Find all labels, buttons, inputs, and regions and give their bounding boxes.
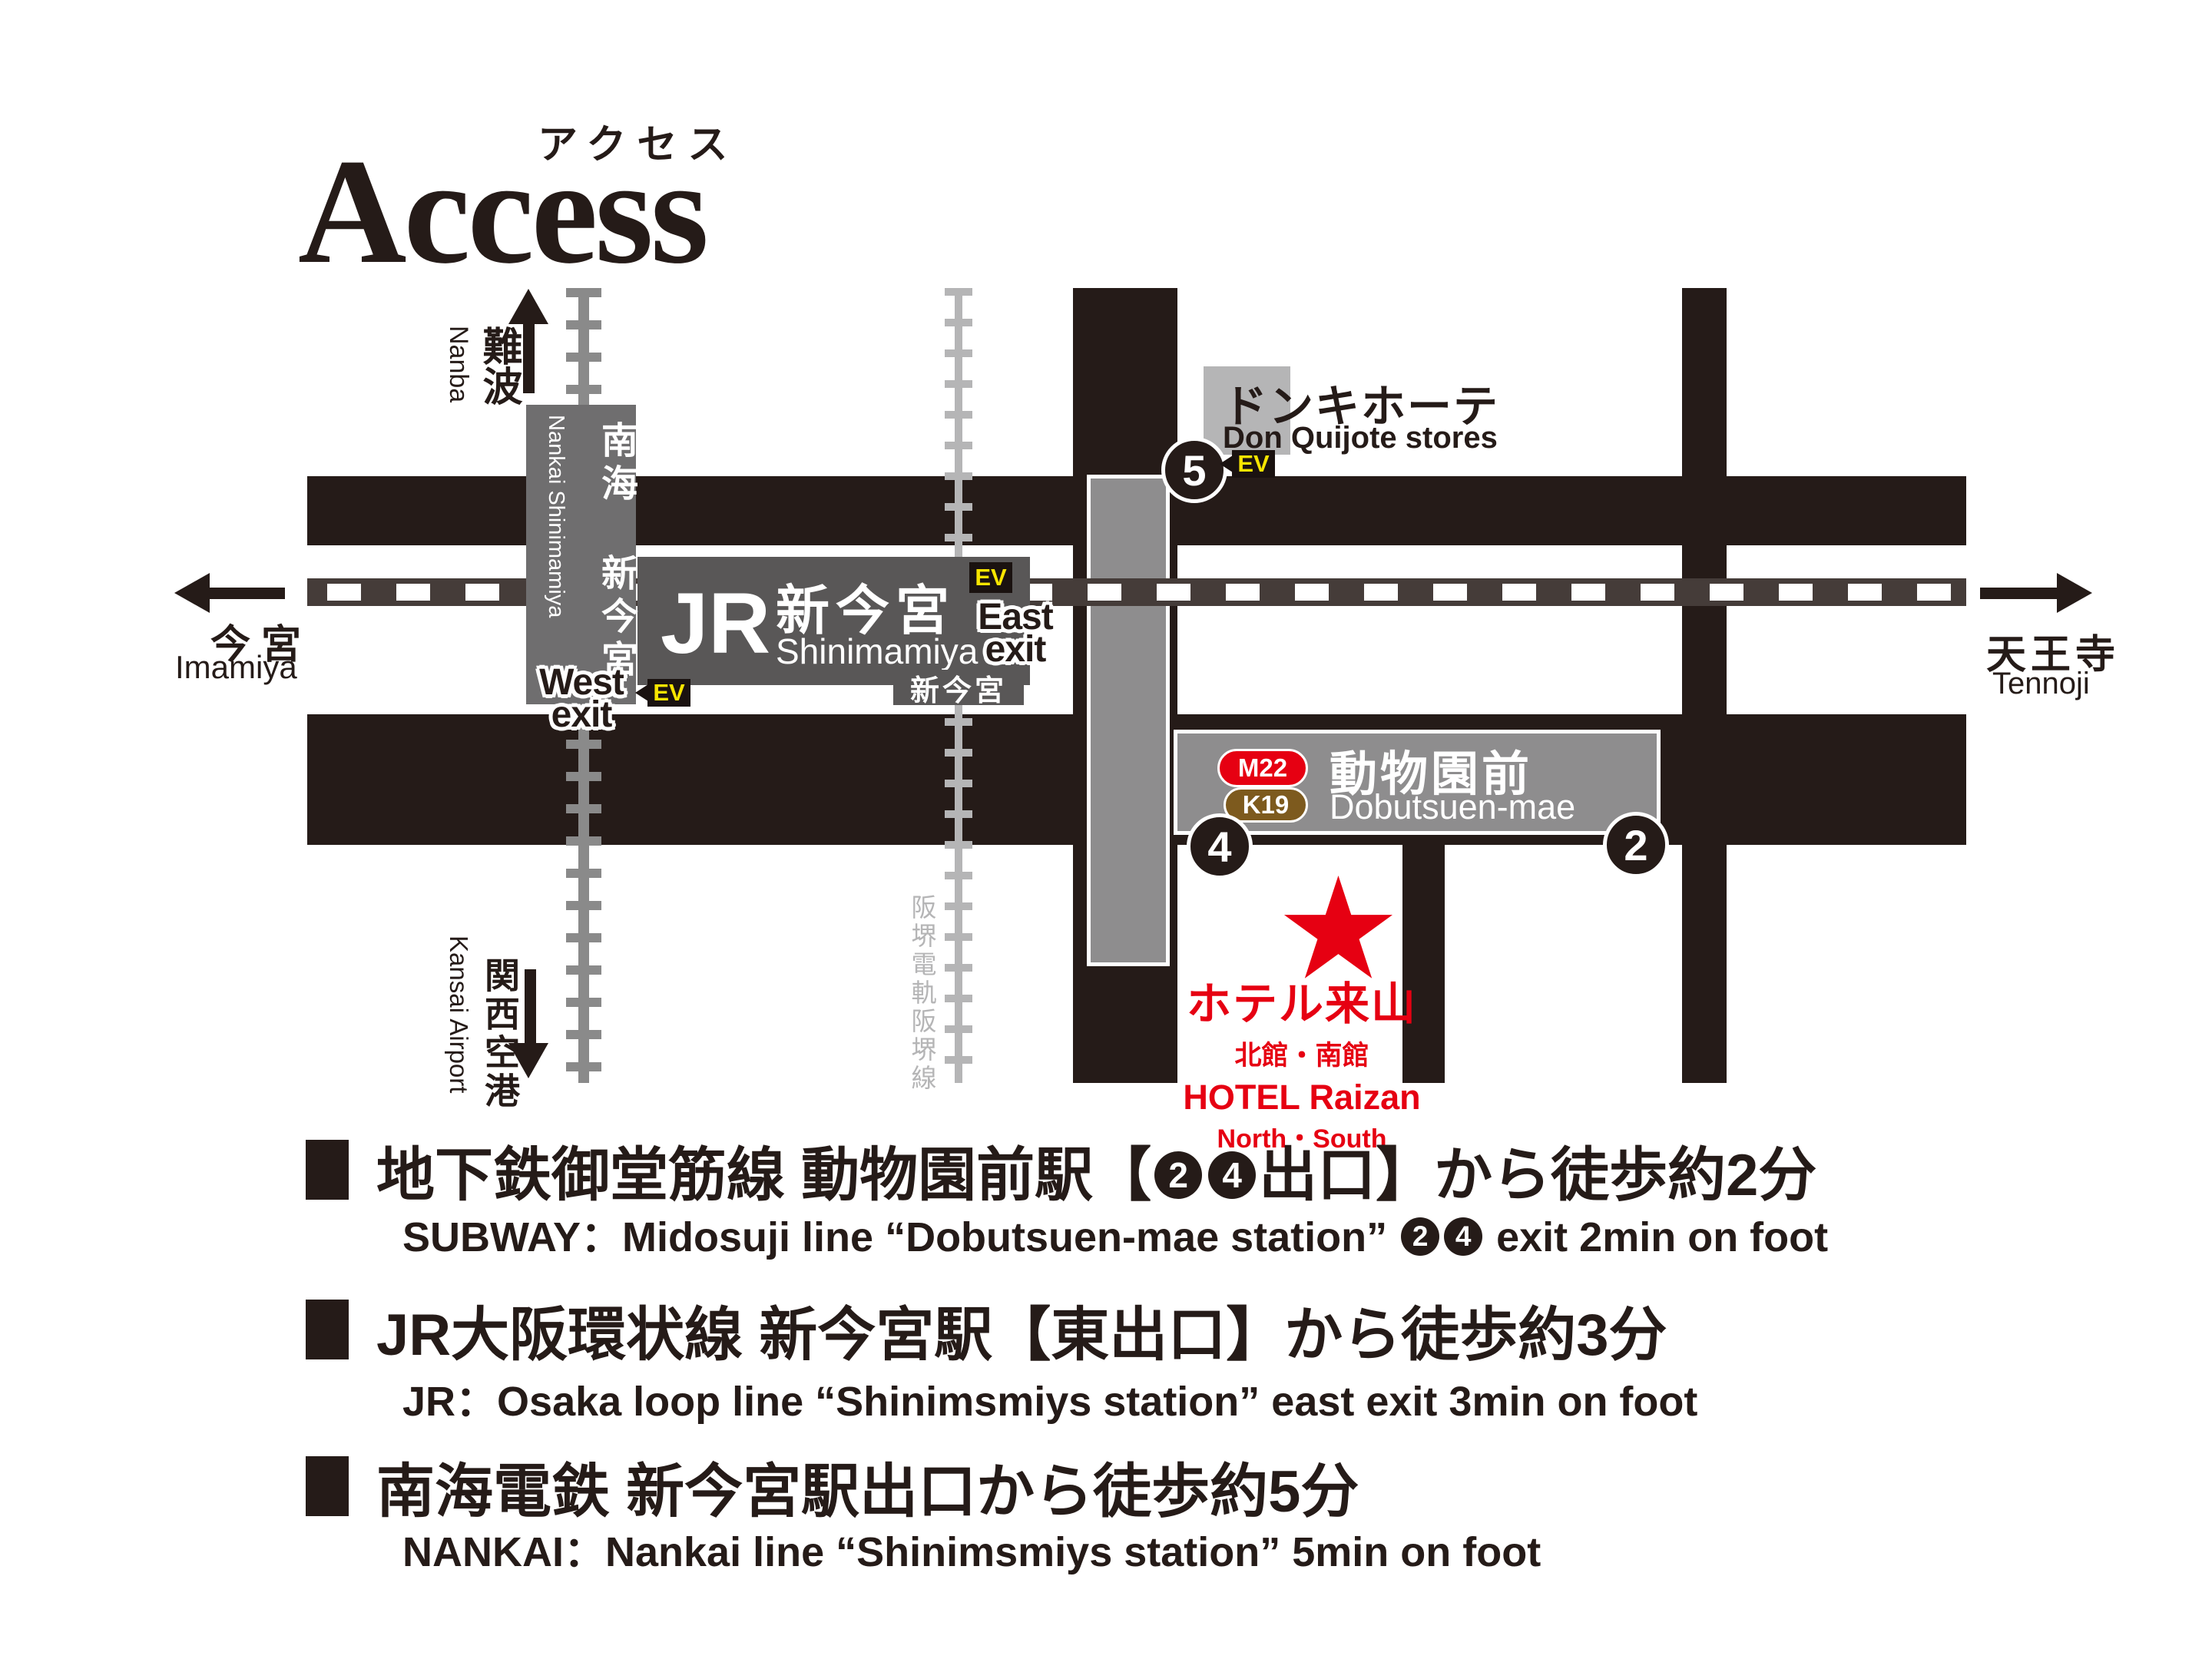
exit-2-inline-badge: 2 (1154, 1151, 1202, 1199)
access-note-jr-en: JR：Osaka loop line “Shinimsmiys station”… (402, 1367, 1697, 1428)
midosuji-line-badge: M22 (1217, 749, 1308, 787)
elevator-badge-west: EV (647, 679, 690, 707)
east-exit-label: Eastexit (972, 601, 1058, 666)
exit-4-inline-badge: 4 (1208, 1151, 1256, 1199)
label-tennoji-en: Tennoji (1992, 667, 2090, 701)
access-note-nankai-en: NANKAI：Nankai line “Shinimsmiys station”… (402, 1518, 1541, 1578)
label-kansai-airport-en: Kansai Airport (444, 935, 473, 1093)
exit-2-inline-badge: 2 (1401, 1217, 1439, 1256)
nankai-station-name-ja: 南海 新今宮 (588, 421, 642, 683)
tram-stop-shinimamiya-box: 新今宮 (893, 670, 1024, 705)
tram-stop-name: 新今宮 (910, 667, 1007, 709)
exit-5-marker: 5 (1161, 437, 1227, 503)
label-kansai-airport-ja: 関西空港 (475, 957, 525, 1111)
elevator-badge-east: EV (969, 562, 1012, 593)
nankai-station-name-en: Nankai Shinimamiya (543, 415, 568, 618)
access-note-subway-ja: 地下鉄御堂筋線 動物園前駅【24出口】から徒歩約2分 (306, 1128, 1816, 1212)
exit-4-marker: 4 (1187, 813, 1253, 879)
ev-pointer-icon (635, 684, 648, 701)
page-title-ja: アクセス (538, 112, 738, 170)
hotel-annex-ja: 北館・南館 (1183, 1034, 1421, 1073)
bullet-square-icon (306, 1300, 349, 1359)
jr-mark: JR (661, 574, 770, 673)
road-vertical-east (1682, 288, 1727, 1083)
ev-pointer-icon (1220, 455, 1233, 472)
label-hankai-line: 阪堺電軌阪堺線 (903, 894, 940, 1093)
hotel-name-ja: ホテル来山 (1183, 968, 1421, 1032)
access-note-nankai-ja: 南海電鉄 新今宮駅出口から徒歩約5分 (306, 1444, 1359, 1528)
hotel-name-en: HOTEL Raizan (1183, 1078, 1421, 1118)
access-note-subway-en: SUBWAY：Midosuji line “Dobutsuen-mae stat… (402, 1203, 1828, 1263)
exit-4-inline-badge: 4 (1444, 1217, 1482, 1256)
access-note-jr-ja: JR大阪環状線 新今宮駅【東出口】から徒歩約3分 (306, 1287, 1667, 1372)
label-nanba-en: Nanba (443, 326, 473, 402)
bullet-square-icon (306, 1456, 349, 1516)
subway-station-name-en: Dobutsuen-mae (1330, 787, 1575, 827)
subway-platform (1087, 475, 1170, 966)
exit-2-marker: 2 (1603, 812, 1669, 878)
west-exit-label: Westexit (527, 667, 636, 731)
elevator-badge-exit5: EV (1232, 450, 1275, 478)
label-imamiya-en: Imamiya (175, 649, 297, 686)
bullet-square-icon (306, 1140, 349, 1200)
dobutsuen-mae-station-box: M22 K19 動物園前 Dobutsuen-mae (1174, 730, 1661, 835)
label-nanba-ja: 難波 (470, 326, 528, 406)
